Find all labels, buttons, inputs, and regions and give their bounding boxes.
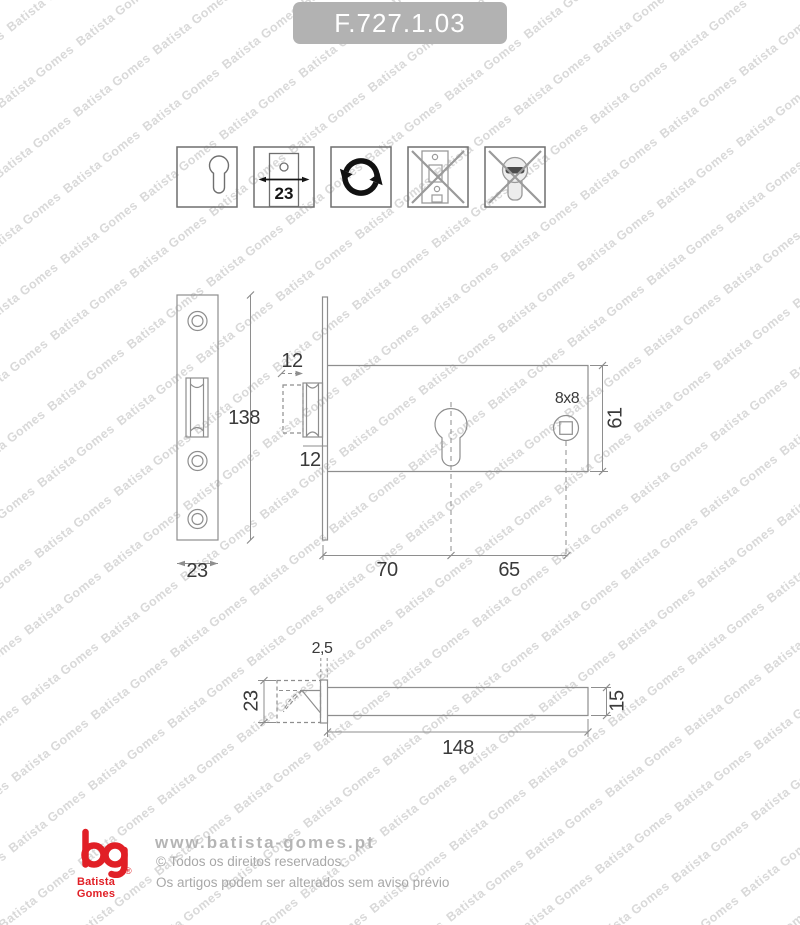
bg-logo [78,828,132,878]
lock-side-view [278,297,608,560]
icon-width-label: 23 [275,184,294,204]
dim-follower-size: 8x8 [555,390,579,408]
registered-mark: ® [125,866,132,876]
website-text: www.batista-gomes.pt [155,833,375,853]
copyright-text: © Todos os direitos reservados. [156,854,345,869]
dim-plate-width: 23 [186,560,207,583]
product-code-banner: F.727.1.03 [293,2,507,44]
crossed-out-faceplate-icon [407,146,469,208]
euro-cylinder-icon [176,146,238,208]
no-cylinder-glyph [484,146,546,208]
euro-cylinder-glyph [176,146,238,208]
dim-roller-projection-top: 12 [281,350,302,373]
product-code: F.727.1.03 [334,8,465,39]
brand-name: Batista Gomes [58,876,134,900]
dim-backset: 70 [376,559,397,582]
dim-plate-height: 138 [228,407,260,430]
notice-text: Os artigos podem ser alterados sem aviso… [156,875,449,890]
lock-top-view [258,658,611,737]
dim-faceplate-thickness: 2,5 [312,640,333,658]
dim-follower-offset: 65 [498,559,519,582]
dim-case-depth: 23 [241,690,264,711]
dim-case-height: 15 [607,690,630,711]
product-sheet: Batista Gomes Batista Gomes Batista Gome… [0,0,800,925]
dim-body-height: 61 [605,407,628,428]
crossed-out-cylinder-icon [484,146,546,208]
no-faceplate-glyph [407,146,469,208]
technical-drawing [0,0,800,925]
dim-case-length: 148 [442,737,474,760]
dim-roller-projection-bottom: 12 [299,449,320,472]
rotation-arrows-glyph [330,146,392,208]
reversible-rotation-icon [330,146,392,208]
